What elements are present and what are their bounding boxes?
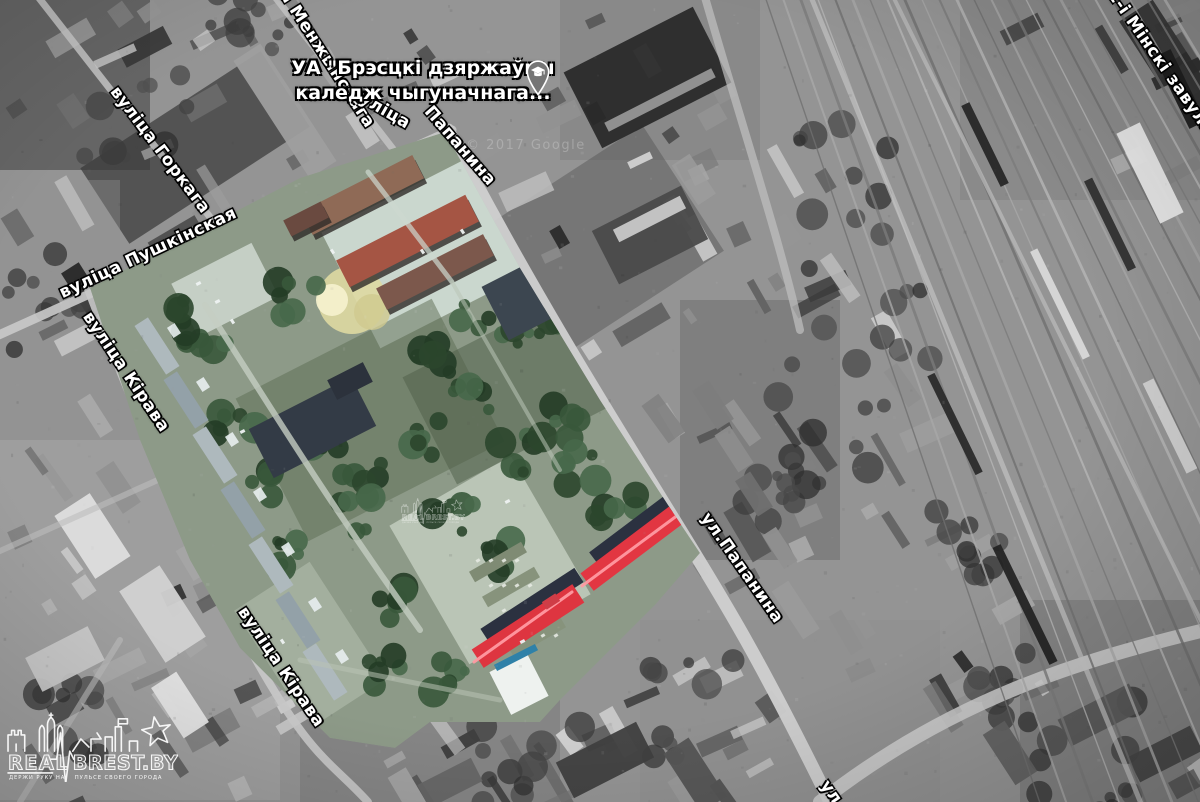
watermark-logo-main: REAL BREST.BY ДЕРЖИ РУКУ НА ПУЛЬСЕ СВОЕГ… [6,696,178,782]
fortress-silhouette [402,505,408,513]
fortress-silhouette [8,730,25,751]
map-canvas[interactable]: вуліца Менжынскага вуліца Папанина вуліц… [0,0,1200,802]
tagline-left: ДЕРЖИ РУКУ НА [9,775,65,781]
satellite-imagery [0,0,1200,802]
watermark-logo-mini: REAL BREST.BY ДЕРЖИ РУКУ НА ПУЛЬСЕ СВОЕГ… [401,492,465,524]
brand-text-real: REAL [8,751,69,774]
brand-text-brest: BREST.BY [73,751,178,774]
imagery-attribution: © 2017 Google [466,138,586,153]
tagline-right: ПУЛЬСЕ СВОЕГО ГОРОДА [75,775,163,781]
tagline-right: ПУЛЬСЕ СВОЕГО ГОРОДА [427,521,460,524]
poi-title-line2: каледж чыгуначнага... [291,81,554,106]
poi-title-line1: УА "Брэсцкі дзяржаўны [291,56,554,81]
education-pin-icon[interactable] [526,60,550,96]
brand-text-brest: BREST.BY [426,512,465,521]
tagline-left: ДЕРЖИ РУКУ НА [402,521,423,524]
city-silhouette [73,719,138,751]
star-silhouette [452,500,463,511]
poi-label-college[interactable]: УА "Брэсцкі дзяржаўны каледж чыгуначнага… [291,56,554,106]
brand-text-real: REAL [402,512,425,521]
city-silhouette [426,500,450,512]
star-silhouette [142,717,170,746]
